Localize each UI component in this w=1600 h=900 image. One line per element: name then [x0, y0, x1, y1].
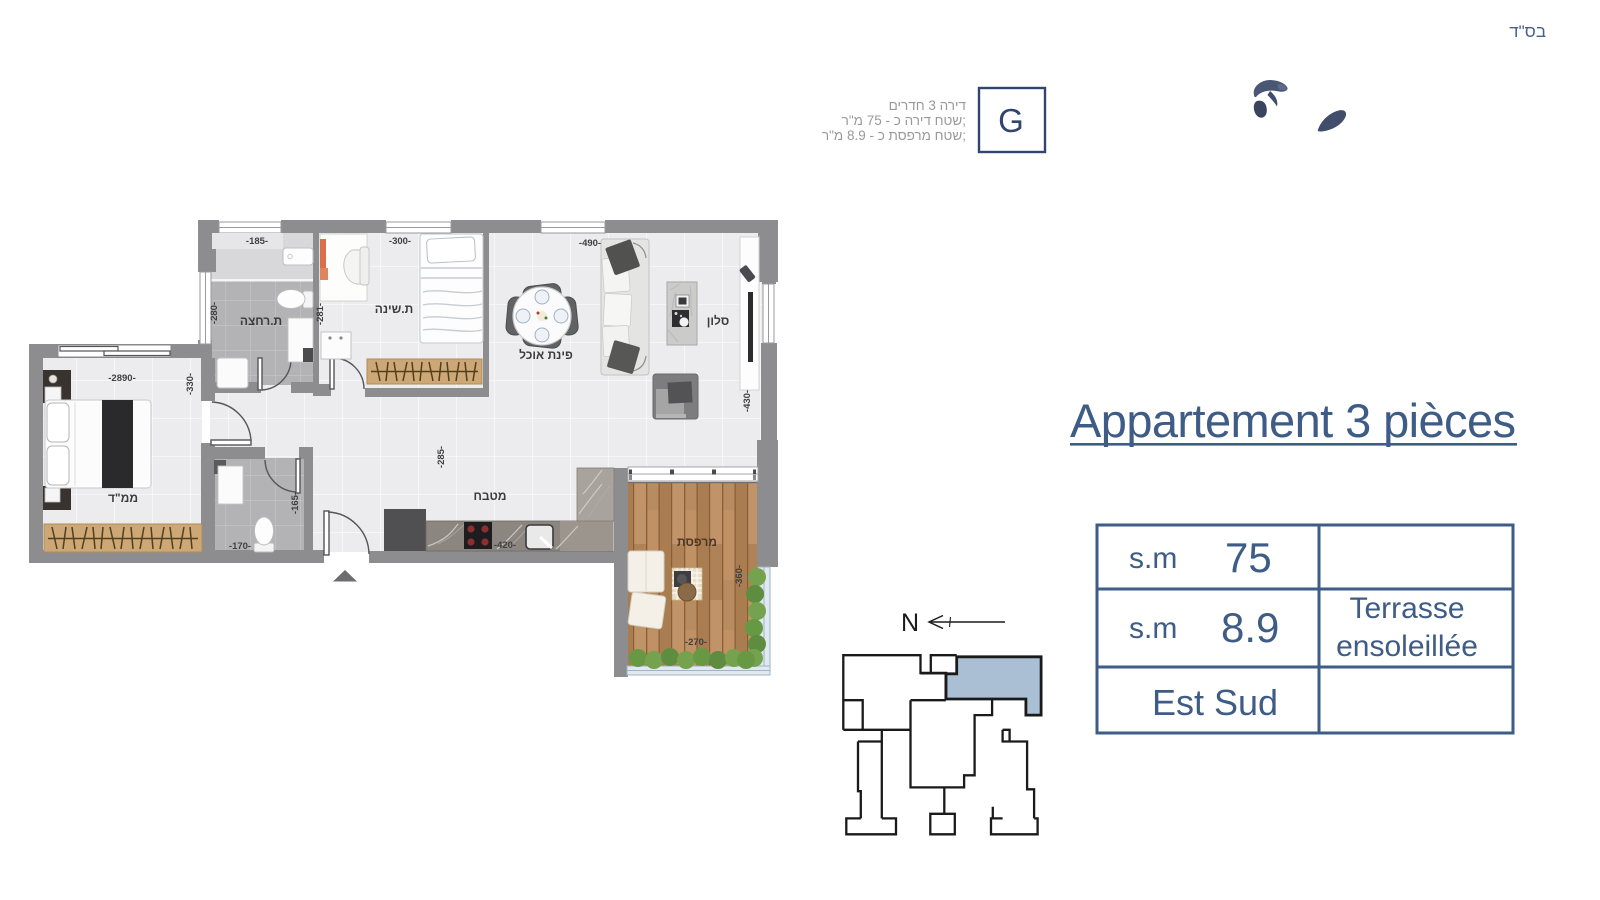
svg-text:פינת אוכל: פינת אוכל	[519, 348, 573, 362]
svg-text:-270-: -270-	[685, 637, 707, 648]
svg-text:-420-: -420-	[494, 540, 516, 551]
svg-text:שטח מרפסת כ - 8.9 מ"ר;: שטח מרפסת כ - 8.9 מ"ר;	[822, 128, 966, 143]
svg-text:-360-: -360-	[734, 565, 745, 587]
svg-text:8.9: 8.9	[1221, 604, 1279, 651]
svg-text:-430-: -430-	[742, 390, 753, 412]
svg-text:-2890-: -2890-	[108, 373, 135, 384]
svg-text:סלון: סלון	[707, 314, 729, 328]
svg-text:ממ"ד: ממ"ד	[108, 491, 138, 505]
svg-text:G: G	[998, 102, 1024, 139]
svg-text:בס"ד: בס"ד	[1509, 22, 1546, 41]
svg-text:-490-: -490-	[579, 238, 601, 249]
svg-text:-170-: -170-	[229, 541, 251, 552]
svg-text:Terrasse: Terrasse	[1349, 592, 1464, 625]
svg-text:-185-: -185-	[246, 236, 268, 247]
svg-text:-281-: -281-	[315, 303, 326, 325]
svg-text:-165-: -165-	[290, 492, 301, 514]
svg-text:Est Sud: Est Sud	[1152, 682, 1278, 723]
svg-text:דירה 3 חדרים: דירה 3 חדרים	[889, 98, 967, 113]
svg-text:ת.שינה: ת.שינה	[375, 302, 414, 316]
svg-text:מרפסת: מרפסת	[677, 535, 717, 549]
svg-text:s.m: s.m	[1129, 542, 1177, 575]
svg-text:-285-: -285-	[436, 446, 447, 468]
svg-text:-280-: -280-	[209, 302, 220, 324]
svg-text:-300-: -300-	[389, 236, 411, 247]
svg-text:Appartement 3 pièces: Appartement 3 pièces	[1070, 394, 1516, 447]
svg-text:-330-: -330-	[185, 373, 196, 395]
svg-text:75: 75	[1225, 534, 1272, 581]
svg-text:ensoleillée: ensoleillée	[1336, 630, 1478, 663]
svg-text:מטבח: מטבח	[473, 489, 506, 503]
svg-text:שטח דירה כ - 75 מ"ר;: שטח דירה כ - 75 מ"ר;	[842, 113, 966, 128]
svg-text:s.m: s.m	[1129, 612, 1177, 645]
svg-text:N: N	[901, 609, 919, 637]
svg-text:ת.רחצה: ת.רחצה	[240, 314, 282, 328]
